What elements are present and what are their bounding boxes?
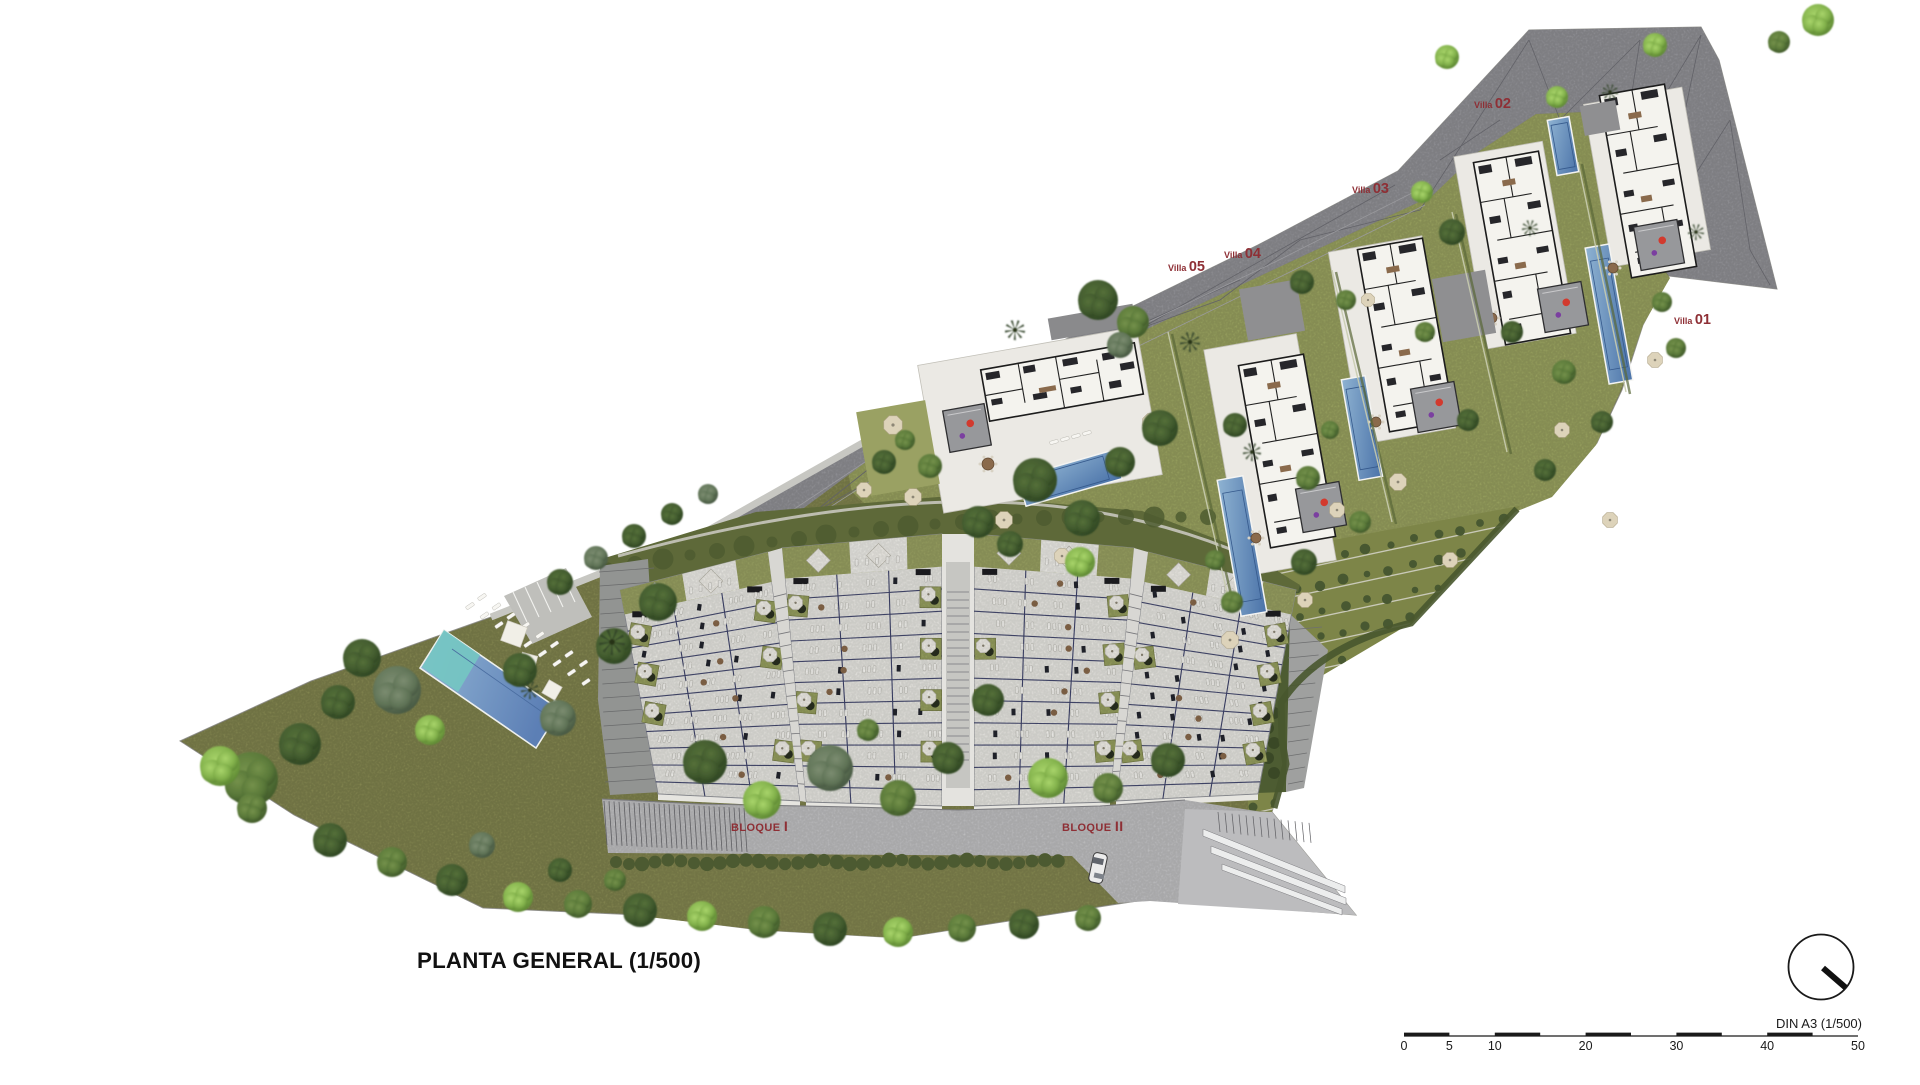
svg-text:0: 0 [1401,1039,1408,1053]
svg-text:DIN A3 (1/500): DIN A3 (1/500) [1776,1016,1862,1031]
svg-text:30: 30 [1669,1039,1683,1053]
svg-text:50: 50 [1851,1039,1865,1053]
svg-text:PLANTA GENERAL (1/500): PLANTA GENERAL (1/500) [417,948,701,973]
svg-text:20: 20 [1579,1039,1593,1053]
svg-text:5: 5 [1446,1039,1453,1053]
svg-text:10: 10 [1488,1039,1502,1053]
svg-text:40: 40 [1760,1039,1774,1053]
